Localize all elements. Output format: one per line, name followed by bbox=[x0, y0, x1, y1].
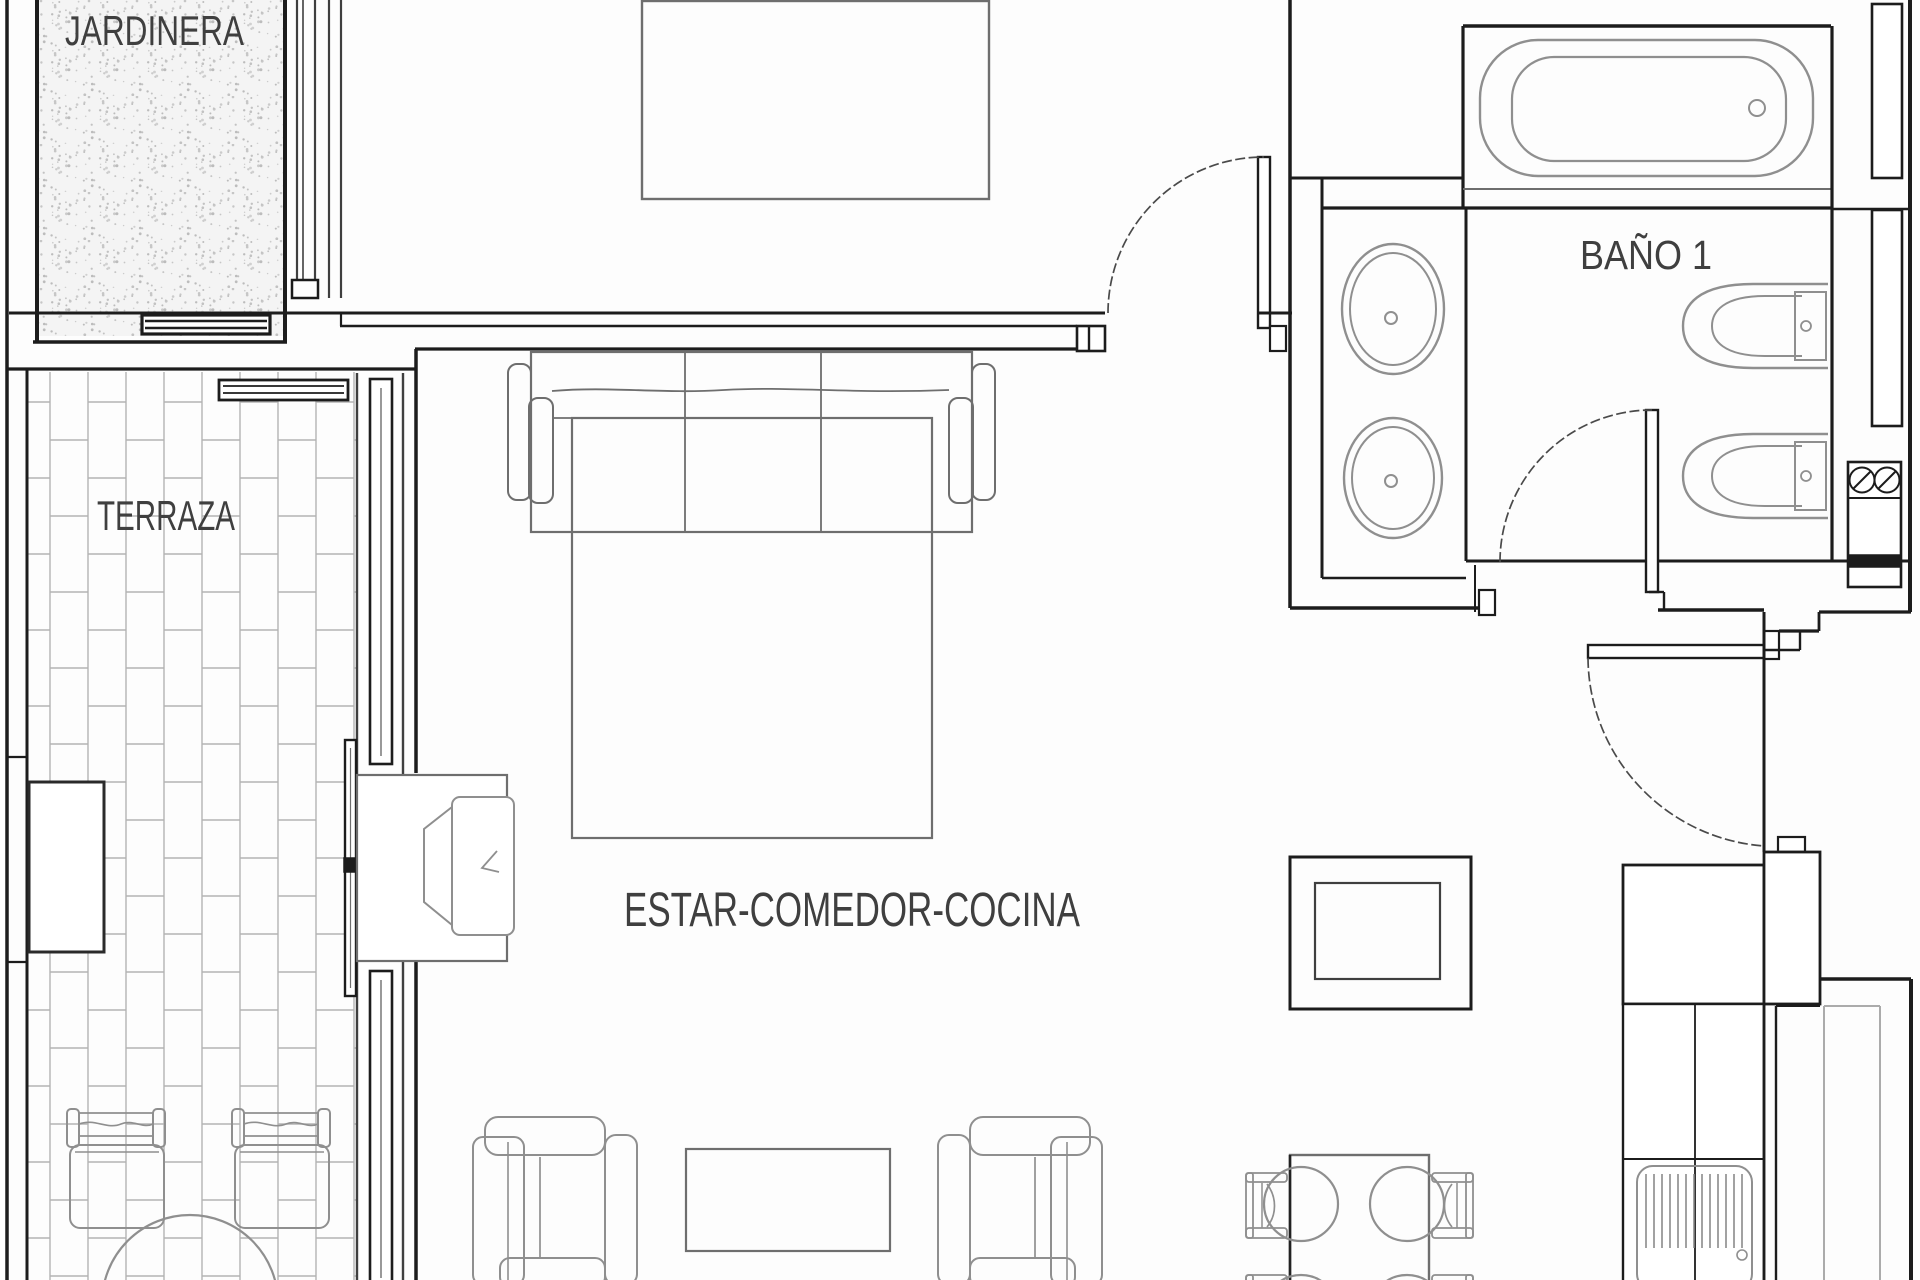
svg-text:TERRAZA: TERRAZA bbox=[97, 492, 235, 539]
svg-text:ESTAR-COMEDOR-COCINA: ESTAR-COMEDOR-COCINA bbox=[624, 884, 1080, 937]
svg-text:BAÑO 1: BAÑO 1 bbox=[1580, 232, 1712, 278]
svg-text:JARDINERA: JARDINERA bbox=[65, 7, 244, 54]
